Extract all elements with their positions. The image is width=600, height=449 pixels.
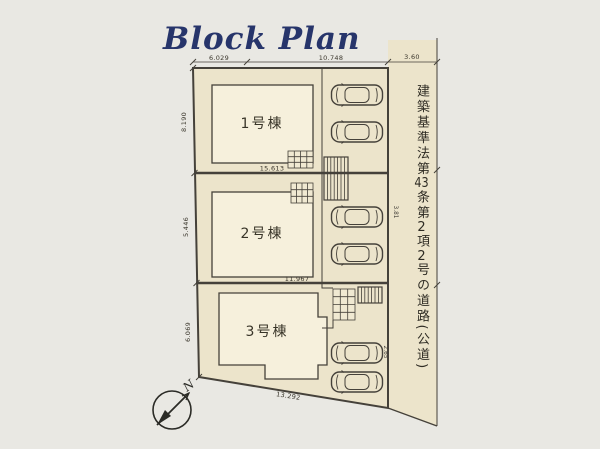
dim-road-lower: 2.65 bbox=[382, 346, 388, 359]
compass: N bbox=[153, 377, 198, 429]
site-plan-drawing: Block Plan 1号棟 2号棟 3号棟 bbox=[0, 0, 600, 449]
building-1-label: 1号棟 bbox=[241, 116, 284, 132]
road-label-part: 条第 bbox=[414, 190, 429, 221]
dim-left-2: 5.446 bbox=[182, 217, 190, 237]
dim-top-right: 3.60 bbox=[404, 53, 420, 61]
road-label-part: 項 bbox=[414, 234, 429, 250]
dim-road-upper: 3.81 bbox=[392, 206, 398, 219]
road-label-number: 2 bbox=[414, 221, 429, 234]
road-label-number: 2 bbox=[414, 250, 429, 263]
road-label-part: (公道) bbox=[414, 325, 429, 371]
building-3-label: 3号棟 bbox=[246, 324, 289, 340]
dim-top-mid: 10.748 bbox=[319, 54, 344, 62]
dim-top-left: 6.029 bbox=[209, 54, 229, 62]
road-label: 建築基準法第43条第2項2号の道路(公道) bbox=[401, 84, 431, 419]
road-label-number: 43 bbox=[414, 177, 429, 190]
block-plan-page: Block Plan 1号棟 2号棟 3号棟 bbox=[0, 0, 600, 449]
dim-left-3: 6.069 bbox=[184, 322, 192, 342]
tile-grid-building2 bbox=[291, 183, 313, 203]
road-label-part: 建築基準法第 bbox=[414, 84, 429, 177]
building-2: 2号棟 bbox=[212, 192, 313, 277]
tile-grid-building1 bbox=[288, 151, 313, 168]
dim-building2-width: 11.967 bbox=[285, 275, 310, 283]
dim-building1-width: 15.613 bbox=[260, 165, 285, 173]
road-label-part: 号の道路 bbox=[414, 263, 429, 325]
page-title: Block Plan bbox=[162, 21, 361, 57]
dim-left-1: 8.190 bbox=[180, 112, 188, 132]
building-2-label: 2号棟 bbox=[241, 226, 284, 242]
north-label: N bbox=[179, 377, 197, 395]
